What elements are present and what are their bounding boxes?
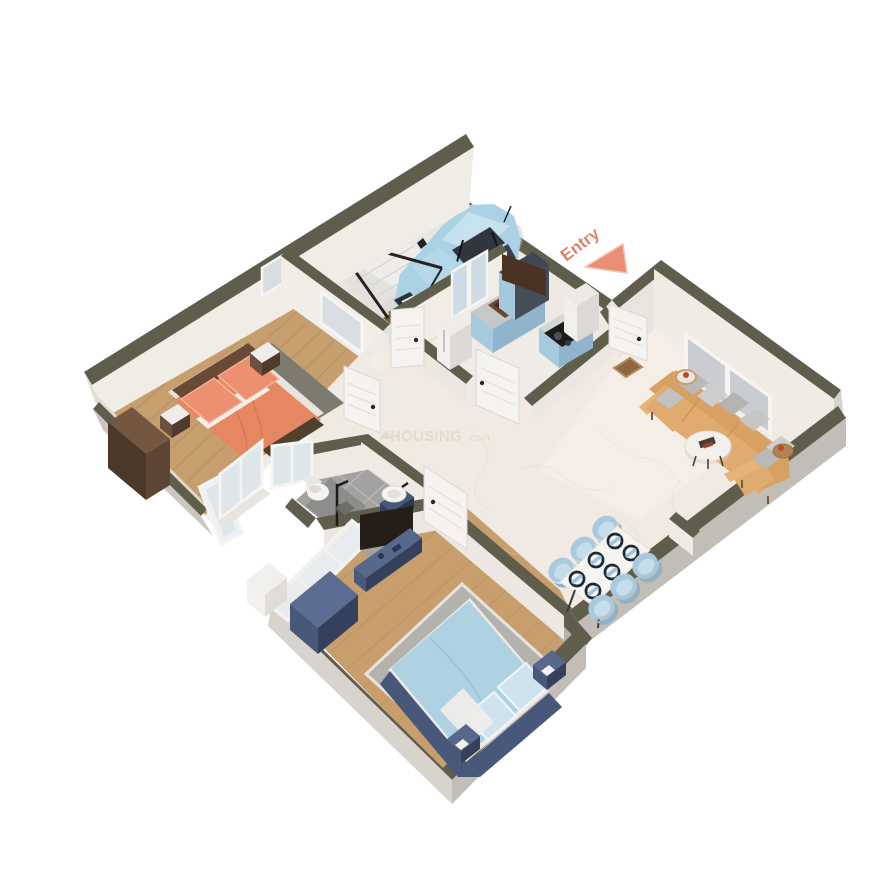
svg-text:.com: .com bbox=[467, 432, 490, 444]
svg-text:HOUSING: HOUSING bbox=[390, 428, 462, 445]
svg-text:Entry: Entry bbox=[557, 224, 604, 266]
